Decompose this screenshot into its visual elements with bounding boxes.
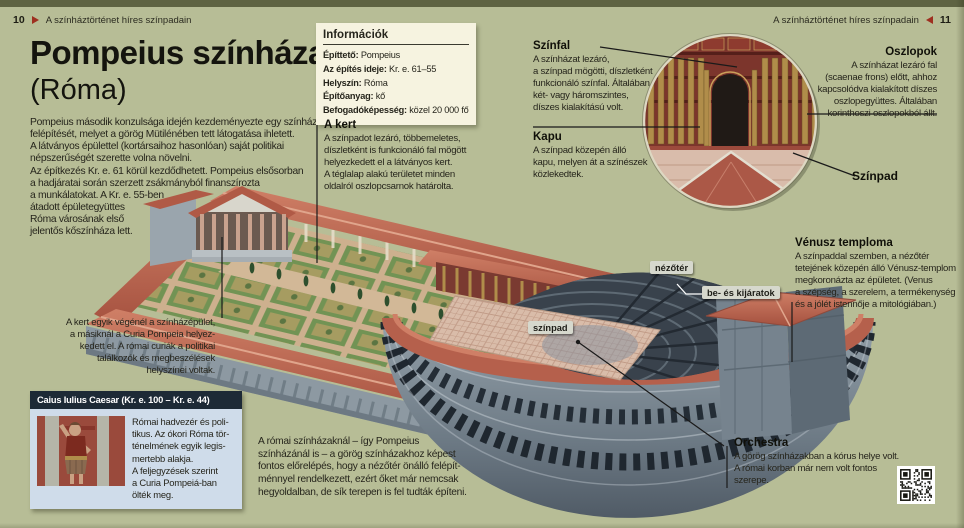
intro-paragraph-1: Pompeius második konzulsága idején kezde… [30,117,317,165]
caesar-box: Caius Iulius Caesar (Kr. e. 100 – Kr. e.… [30,391,242,509]
running-title-left: A színháztörténet híres színpadain [46,15,192,26]
tag-szinpad: színpad [528,321,573,334]
info-row: Építőanyag: kő [323,90,469,104]
callout-szinpad-label: Színpad [852,169,898,183]
page-number-left: 10 [13,14,25,26]
note-roman-theatres: A római színházaknál – így Pompeius szín… [258,436,467,499]
caesar-box-title: Caius Iulius Caesar (Kr. e. 100 – Kr. e.… [30,391,242,409]
caesar-portrait [37,416,125,486]
top-strip [0,0,964,7]
callout-kapu: Kapu A színpad közepén álló kapu, melyen… [533,131,647,181]
triangle-right-icon [32,16,39,24]
qr-code [897,466,935,504]
note-curia: A kert egyik végénél a színházépület, a … [66,317,215,376]
stage-inset [643,34,821,213]
info-row: Helyszín: Róma [323,77,469,91]
orchestra-callout-dot [576,340,580,344]
callout-oszlopok: Oszlopok A színházat lezáró fal (scaenae… [818,46,937,119]
info-row: Befogadóképesség: közel 20 000 fő [323,104,469,118]
info-box-title: Információk [323,29,469,45]
info-row: Az építés ideje: Kr. e. 61–55 [323,63,469,77]
tag-nezoter: nézőtér [650,261,693,274]
info-row: Építtető: Pompeius [323,49,469,63]
page-edge-shadow-right [956,0,964,528]
page-title: Pompeius színháza [30,36,326,71]
callout-kert: A kert A színpadot lezáró, többemeletes,… [324,119,466,192]
page-edge-shadow-bottom [0,523,964,528]
running-title-right: A színháztörténet híres színpadain [773,15,919,26]
triangle-left-icon [926,16,933,24]
info-box: Információk Építtető: Pompeius Az építés… [316,23,476,125]
book-spread: 10 A színháztörténet híres színpadain A … [0,0,964,528]
tag-be-es-kijaratok: be- és kijáratok [702,286,780,299]
page-number-right: 11 [940,14,951,26]
header-left: 10 A színháztörténet híres színpadain [13,14,191,26]
callout-orchestra: Orchestra A görög színházakban a kórus h… [734,437,899,487]
header-right: A színháztörténet híres színpadain 11 [773,14,951,26]
intro-paragraph-2: Az építkezés Kr. e. 61 körül kezdődhetet… [30,166,303,238]
page-subtitle: (Róma) [30,74,127,107]
callout-szinfal: Színfal A színházat lezáró, a színpad mö… [533,40,652,113]
caesar-box-body: Római hadvezér és poli- tikus. Az ókori … [132,416,229,502]
callout-venusz: Vénusz temploma A színpaddal szemben, a … [795,237,956,310]
